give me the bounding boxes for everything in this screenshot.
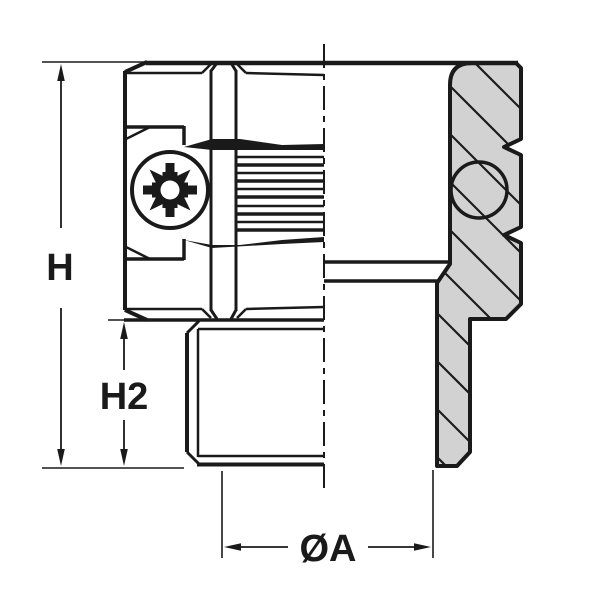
cross-section (324, 0, 590, 600)
lower-cylinder (124, 320, 324, 465)
dia-arrowhead-left (224, 543, 241, 551)
dimension-diameter-A: ØA (222, 470, 433, 570)
H2-label: H2 (100, 376, 149, 418)
screw-head-center (161, 181, 180, 200)
hex-top-chamfer (125, 62, 147, 72)
pozidriv-screw-head-icon (132, 152, 208, 228)
hex-corner-neck-bottom-right (231, 310, 236, 319)
H-label: H (46, 247, 73, 289)
H-arrowhead-down (57, 449, 65, 466)
diameter-A-label: ØA (300, 528, 357, 570)
technical-drawing-canvas: H H2 ØA (0, 0, 600, 600)
hex-corner-neck-bottom-left (211, 310, 217, 319)
dia-arrowhead-right (414, 543, 431, 551)
facet-chamfer-bottom-right-diag (237, 309, 246, 318)
serration-lines (237, 157, 324, 230)
serration-bottom-boundary (184, 237, 324, 248)
facet-chamfer-top-right (246, 73, 324, 75)
H2-arrowhead-up (120, 322, 128, 339)
dimension-H2: H2 (100, 320, 149, 466)
H2-arrowhead-down (120, 449, 128, 466)
serration-top-boundary (184, 139, 324, 150)
fitting-drawing: H H2 ØA (0, 0, 600, 600)
facet-chamfer-top-right-diag (237, 64, 246, 73)
facet-chamfer-bottom-right (246, 307, 324, 309)
H-arrowhead-up (57, 64, 65, 81)
